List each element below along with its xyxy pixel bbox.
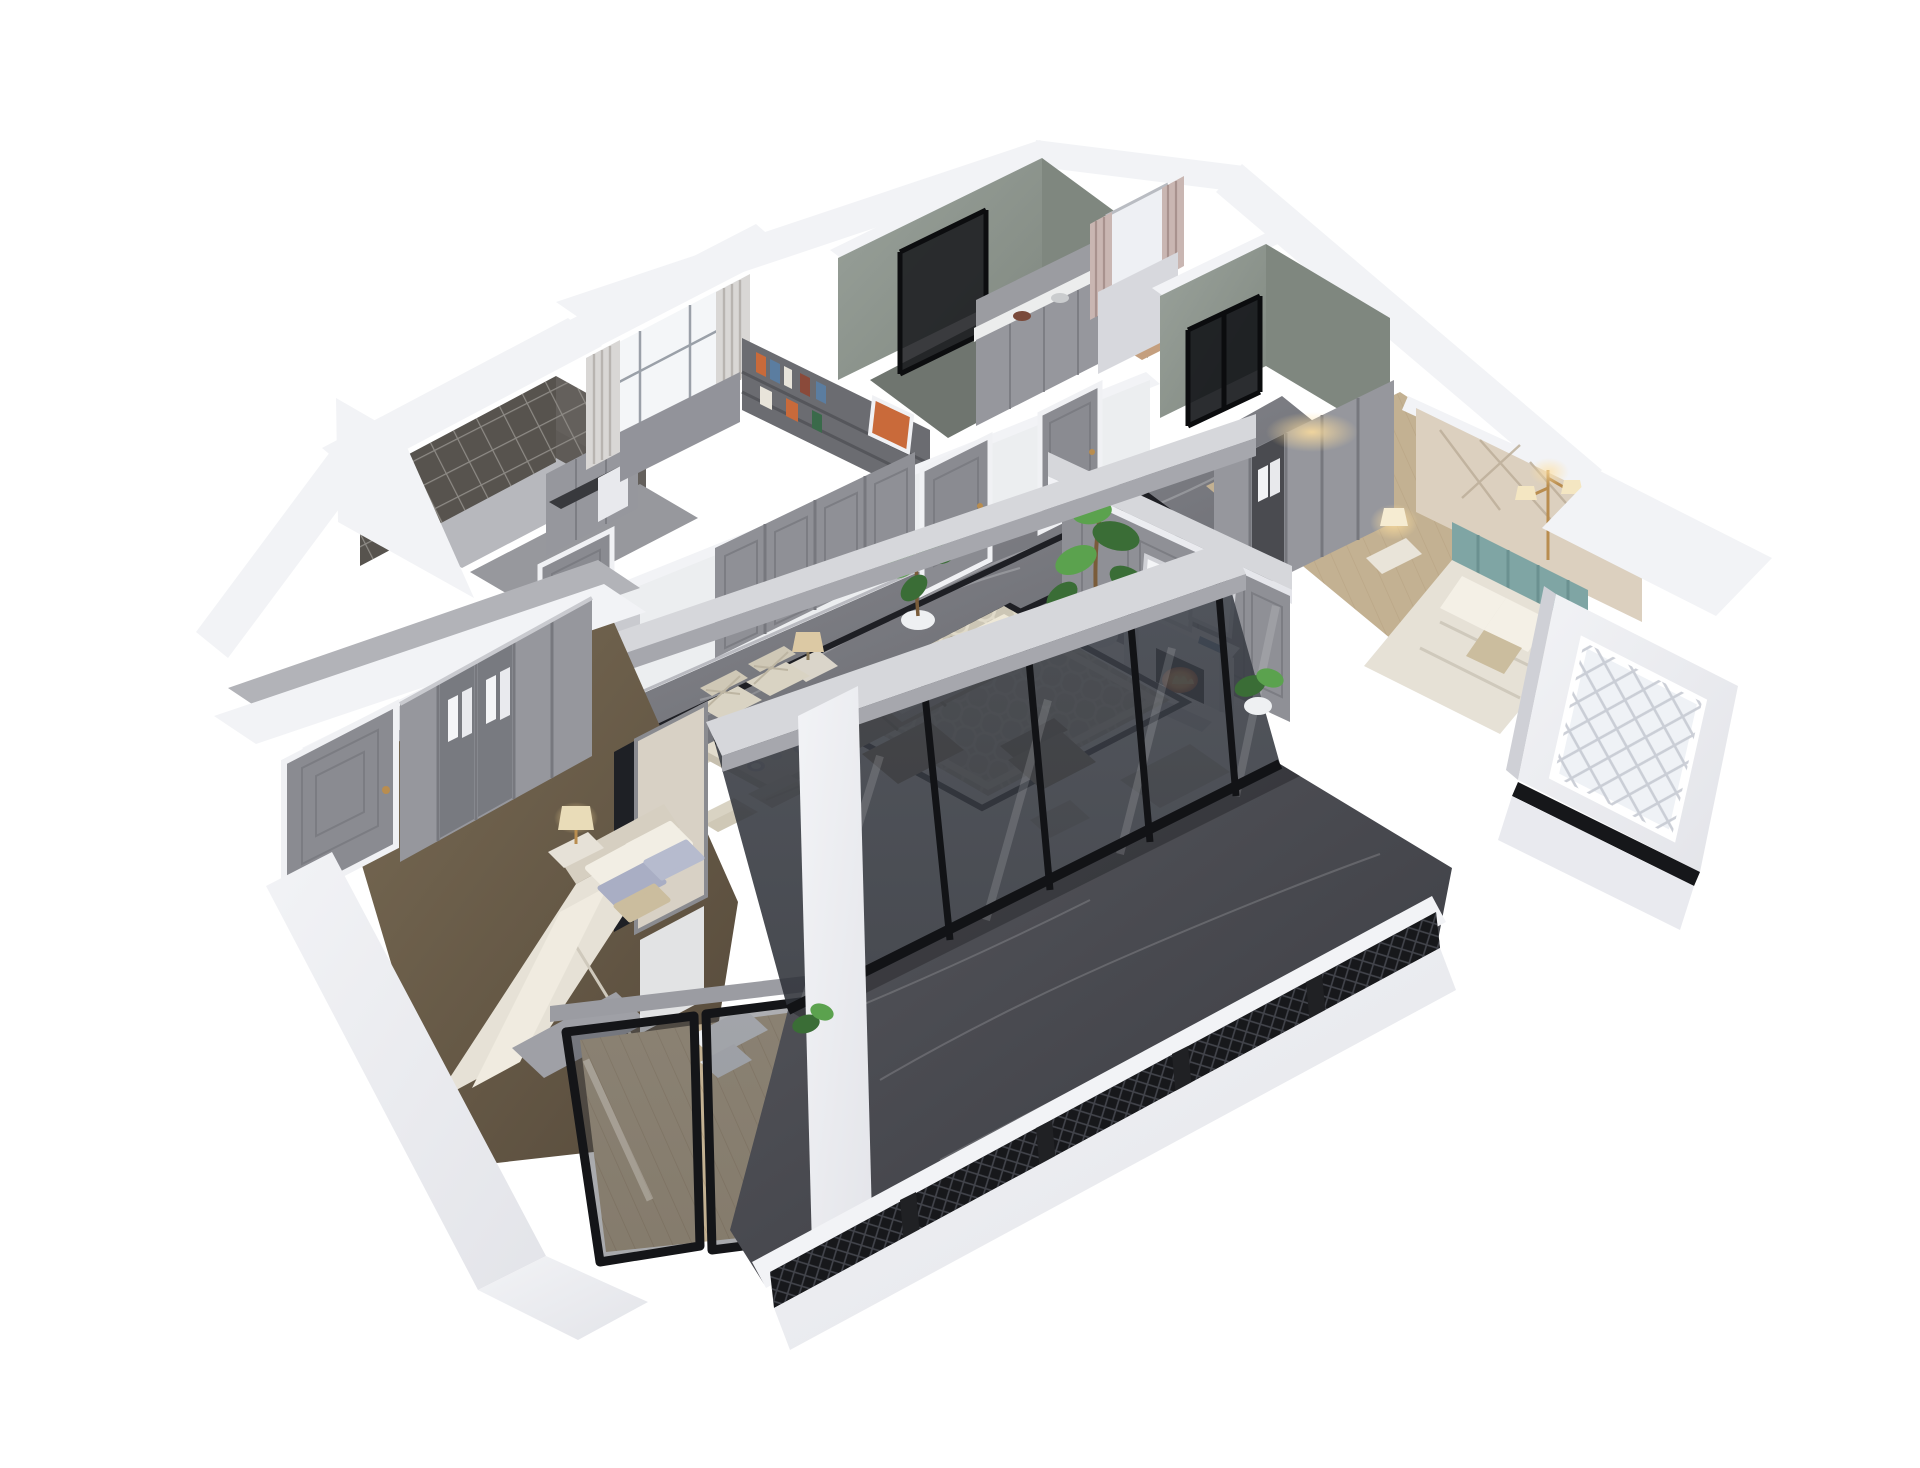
glass-door <box>478 642 512 817</box>
hanging-clothes <box>448 695 458 742</box>
hanging-clothes <box>1258 465 1268 502</box>
bowl <box>1013 311 1031 321</box>
render-canvas <box>0 0 1920 1468</box>
table-lamp <box>558 806 594 830</box>
outer-wall-west <box>196 452 362 658</box>
bowl-2 <box>1051 293 1069 303</box>
apartment-render <box>0 0 1920 1468</box>
cabinet-light <box>1266 412 1358 452</box>
table-lamp-2 <box>1380 508 1408 526</box>
